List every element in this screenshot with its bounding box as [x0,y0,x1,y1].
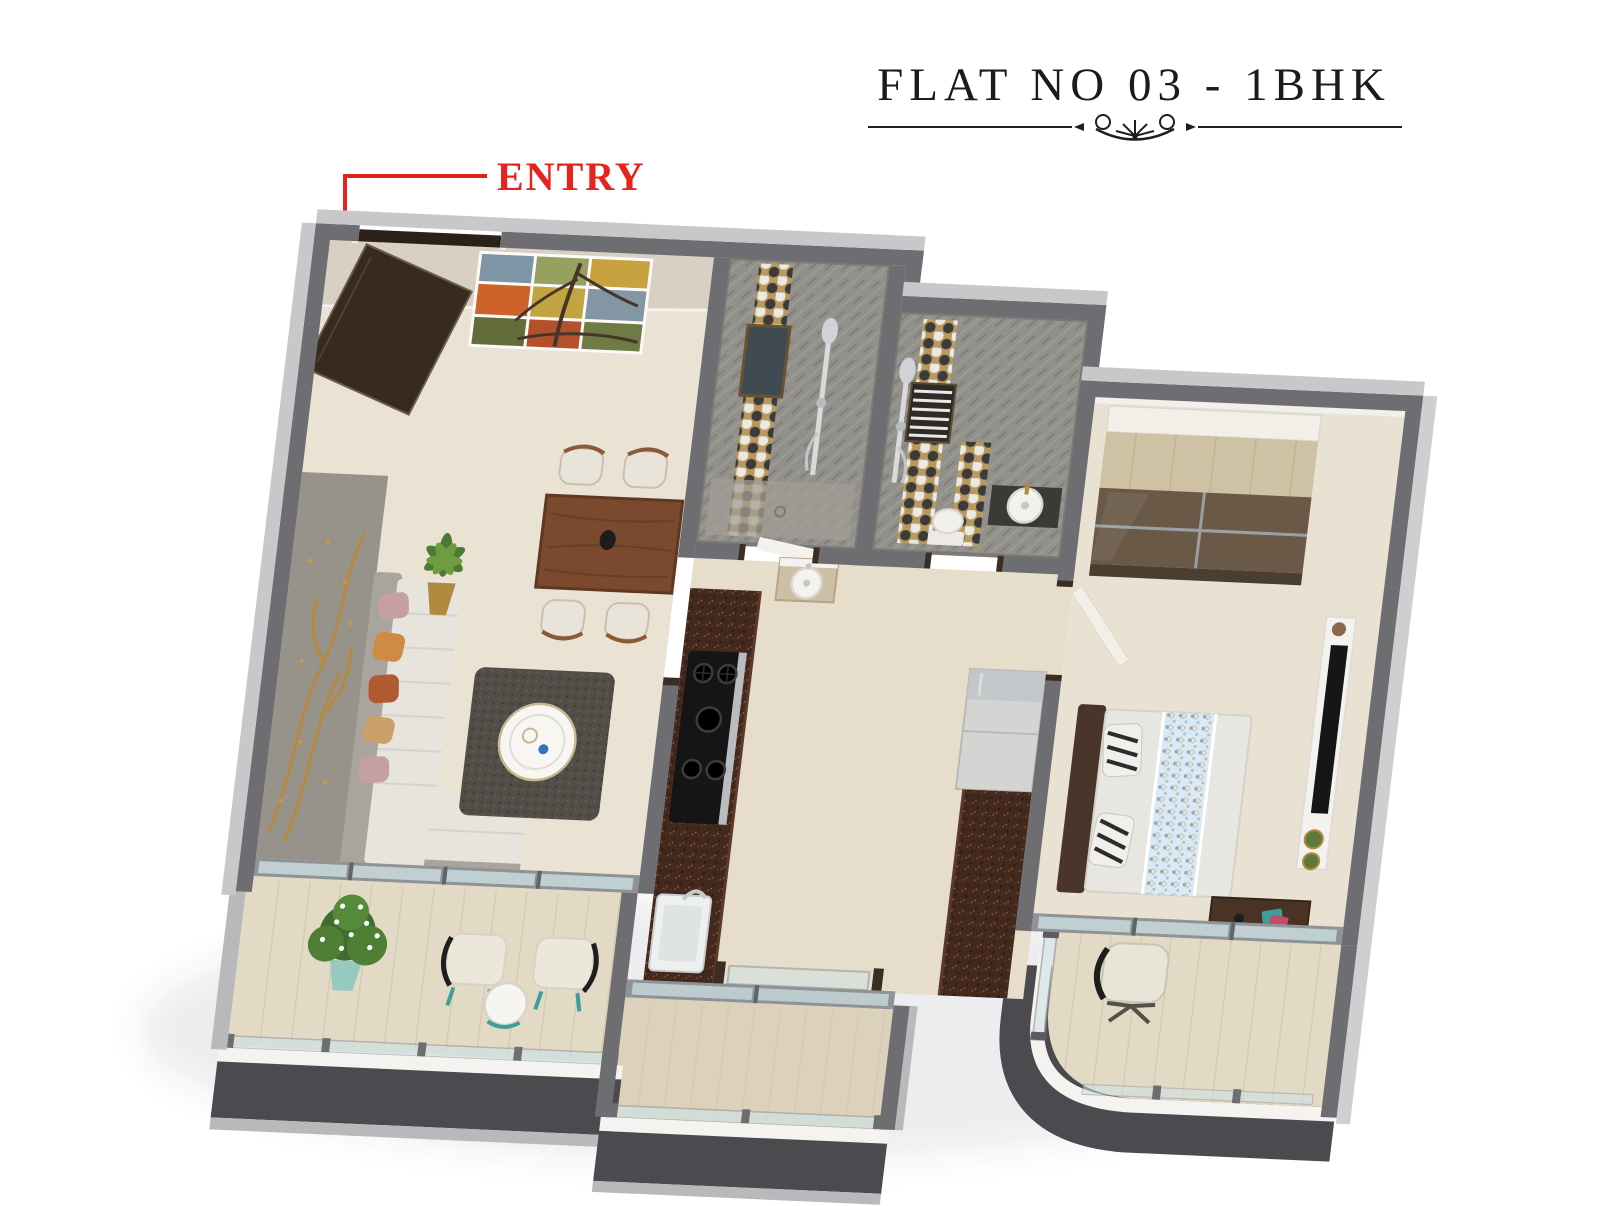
succulent-pot [1302,853,1320,870]
header: FLAT NO 03 - 1BHK [868,59,1402,140]
passage-wash-basin [775,558,838,603]
dining-chair [622,448,669,488]
dining-chair [540,600,587,640]
entry-label: ENTRY [497,154,646,199]
bathroom-vent-window [905,383,956,443]
gold-faucet [1026,483,1027,495]
floorplan [188,209,1454,1206]
shower-floor-area [705,478,856,540]
wall-art [468,251,654,355]
wardrobe [1089,406,1321,586]
refrigerator [956,669,1046,792]
page-title: FLAT NO 03 - 1BHK [877,59,1391,111]
bed [1056,704,1253,900]
dining-chair [604,602,651,642]
divider-ornament [868,115,1402,140]
attached-bath-basin [988,481,1063,528]
bedroom-balcony-floor [1036,932,1341,1107]
kitchen-sink [649,890,713,973]
floorplan-page: FLAT NO 03 - 1BHK ENTRY [0,0,1600,1206]
bathroom-window-niche [740,325,790,397]
succulent-pot [1304,830,1324,849]
dining-chair [558,446,605,486]
utility-balcony [592,1103,891,1205]
